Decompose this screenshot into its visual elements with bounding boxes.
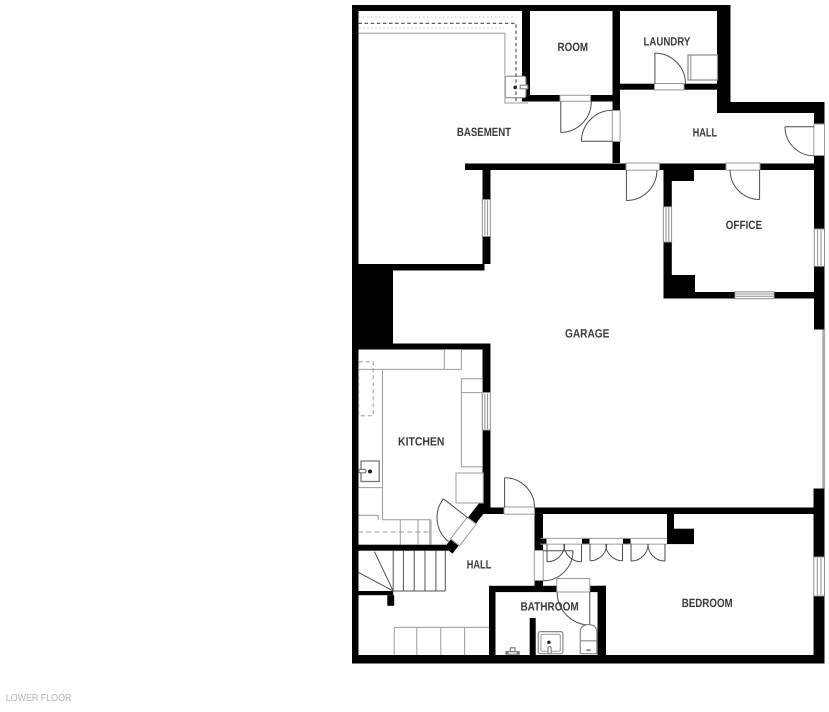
svg-text:BEDROOM: BEDROOM: [682, 596, 733, 610]
svg-text:LAUNDRY: LAUNDRY: [644, 34, 691, 48]
svg-text:ROOM: ROOM: [558, 40, 589, 54]
svg-text:LOWER FLOOR: LOWER FLOOR: [6, 693, 72, 704]
svg-text:KITCHEN: KITCHEN: [398, 434, 444, 448]
svg-text:HALL: HALL: [467, 558, 491, 572]
svg-text:OFFICE: OFFICE: [726, 218, 763, 232]
svg-text:HALL: HALL: [693, 126, 718, 140]
svg-text:GARAGE: GARAGE: [565, 326, 609, 340]
svg-text:BATHROOM: BATHROOM: [520, 599, 578, 613]
svg-text:BASEMENT: BASEMENT: [457, 125, 512, 139]
